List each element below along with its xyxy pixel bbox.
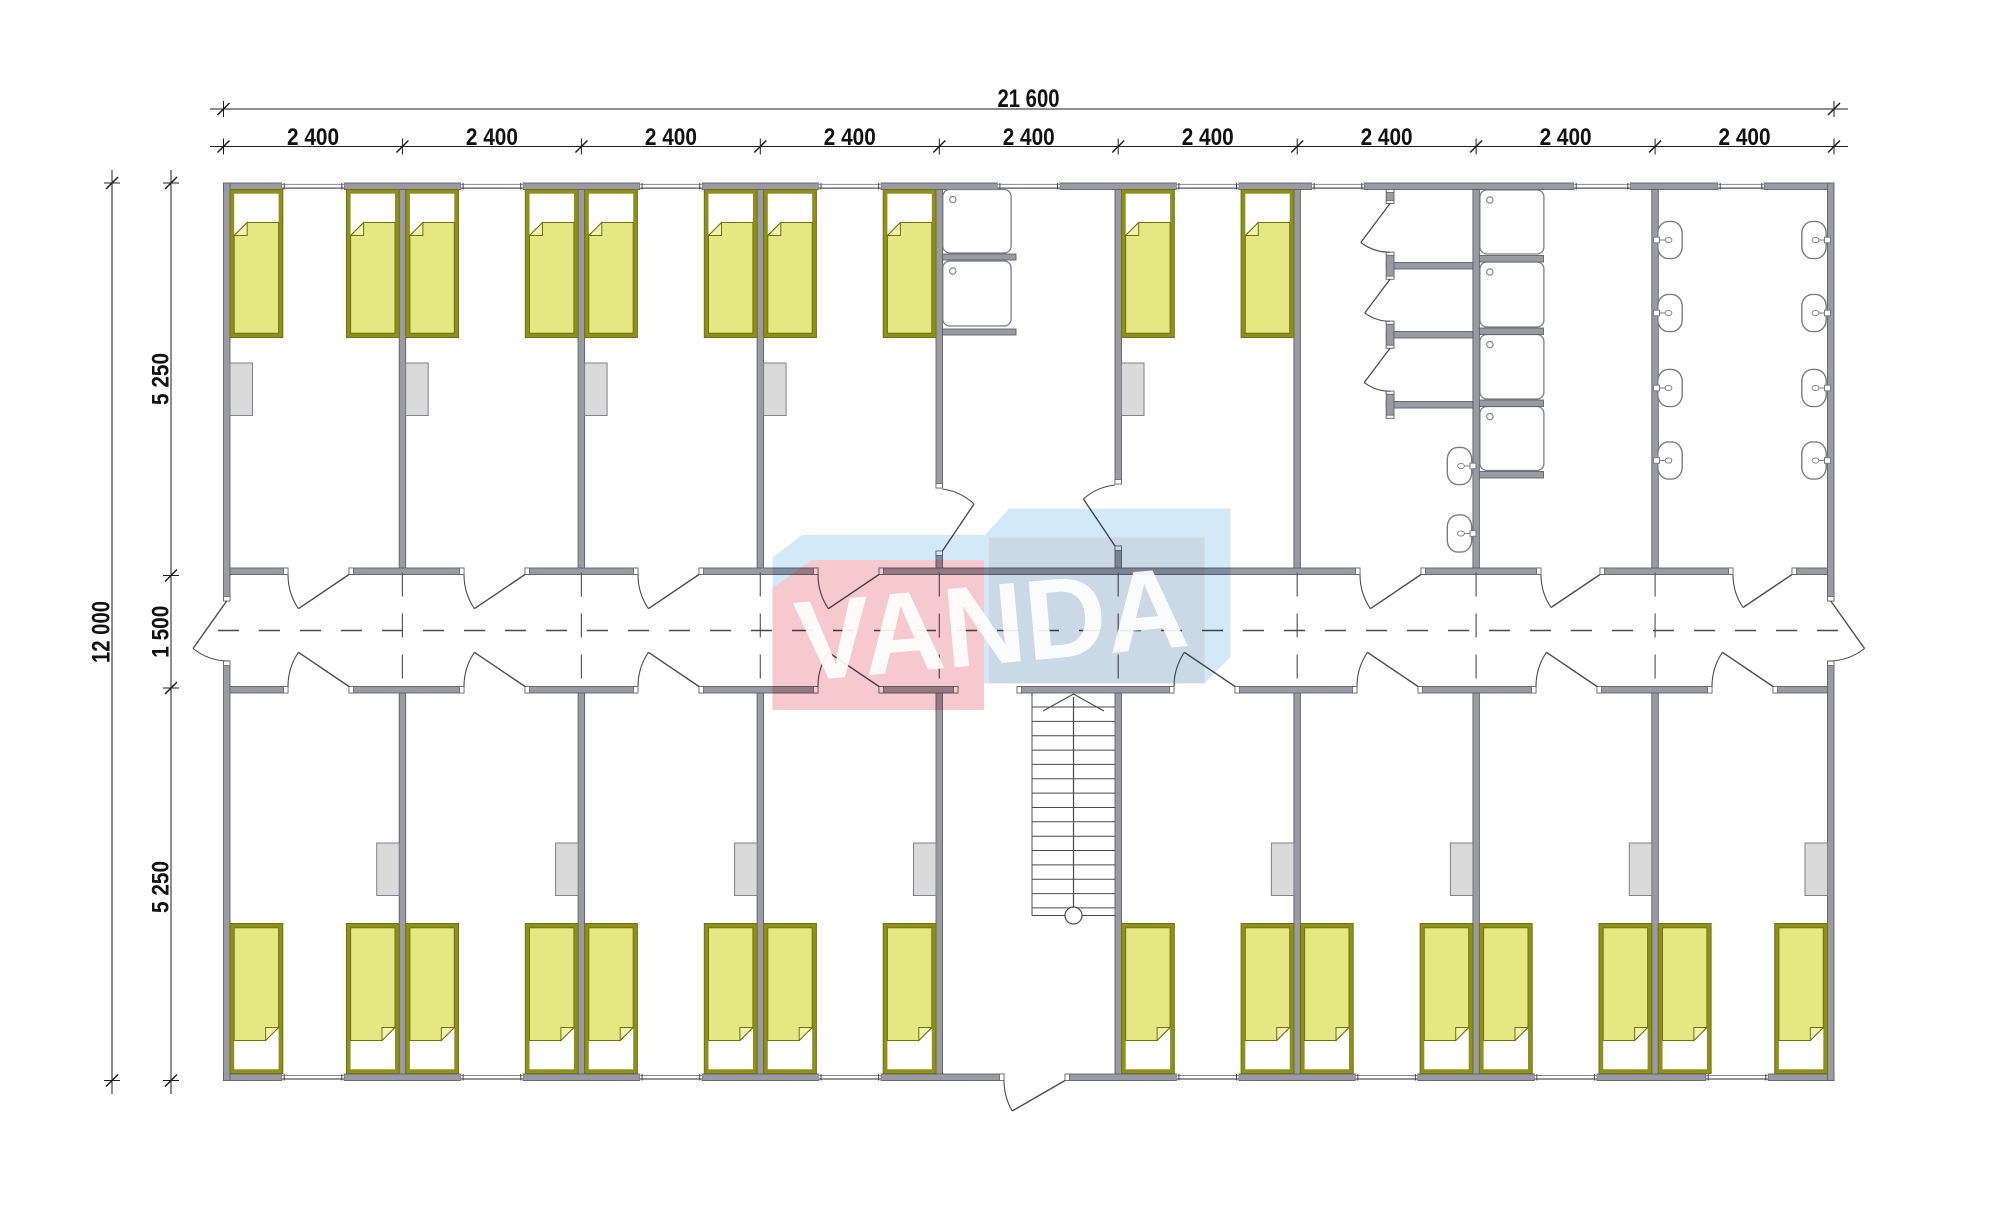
svg-text:21 600: 21 600 — [998, 85, 1060, 113]
svg-text:2 400: 2 400 — [1003, 124, 1055, 151]
svg-text:1 500: 1 500 — [148, 606, 175, 658]
svg-text:2 400: 2 400 — [1182, 124, 1234, 151]
svg-text:2 400: 2 400 — [824, 124, 876, 151]
svg-text:5 250: 5 250 — [148, 353, 175, 405]
svg-text:5 250: 5 250 — [148, 861, 175, 913]
svg-text:2 400: 2 400 — [645, 124, 697, 151]
svg-text:2 400: 2 400 — [1361, 124, 1413, 151]
svg-text:2 400: 2 400 — [1719, 124, 1771, 151]
svg-text:2 400: 2 400 — [1540, 124, 1592, 151]
svg-text:2 400: 2 400 — [287, 124, 339, 151]
svg-text:2 400: 2 400 — [466, 124, 518, 151]
svg-text:12 000: 12 000 — [88, 601, 116, 663]
